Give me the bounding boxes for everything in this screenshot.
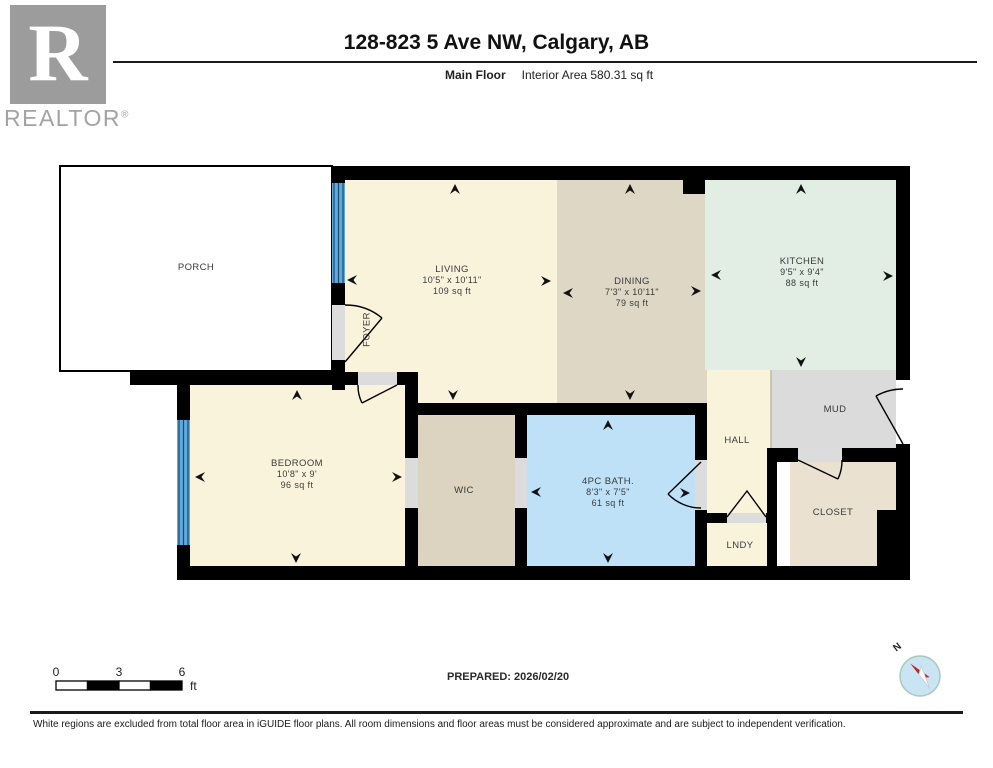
wall-segment — [332, 166, 910, 180]
lndy-door-opening — [727, 513, 766, 523]
wic-left-opening — [405, 458, 418, 508]
room-fill-bath — [521, 408, 701, 572]
wall-segment — [766, 513, 777, 523]
room-fill-bedroom — [184, 378, 411, 572]
floorplan-drawing — [0, 0, 993, 768]
scale-segment — [56, 681, 88, 690]
bedroom-window — [177, 420, 190, 545]
room-fill-lndy — [705, 517, 771, 572]
room-fill-wic — [411, 408, 521, 572]
wall-segment — [877, 510, 910, 570]
bedroom-door-opening — [358, 372, 397, 385]
room-fill-porch — [60, 166, 332, 371]
room-fill-kitchen — [705, 172, 898, 370]
room-fill-hall — [707, 370, 771, 517]
wic-right-opening — [515, 458, 527, 508]
scale-segment — [119, 681, 151, 690]
footer-disclaimer: White regions are excluded from total fl… — [33, 719, 973, 730]
wall-segment — [701, 513, 727, 523]
bath-door-opening — [695, 460, 707, 510]
closet-door-opening — [798, 448, 842, 462]
scale-tick-6: 6 — [172, 665, 192, 679]
scale-bar — [56, 681, 182, 690]
wall-segment — [767, 448, 777, 572]
scale-tick-0: 0 — [46, 665, 66, 679]
scale-segment — [88, 681, 120, 690]
floorplan-page: R REALTOR® 128-823 5 Ave NW, Calgary, AB… — [0, 0, 993, 768]
wall-segment — [405, 403, 707, 415]
room-fill-dining — [557, 172, 707, 408]
scale-tick-3: 3 — [109, 665, 129, 679]
wall-segment — [177, 566, 910, 580]
prepared-date: PREPARED: 2026/02/20 — [447, 671, 569, 683]
scale-unit: ft — [190, 679, 197, 693]
wall-segment — [683, 180, 705, 194]
compass-icon — [900, 656, 940, 696]
foyer-window — [332, 183, 345, 283]
scale-segment — [151, 681, 183, 690]
footer-divider — [30, 711, 963, 714]
foyer-entry-opening — [332, 305, 345, 360]
